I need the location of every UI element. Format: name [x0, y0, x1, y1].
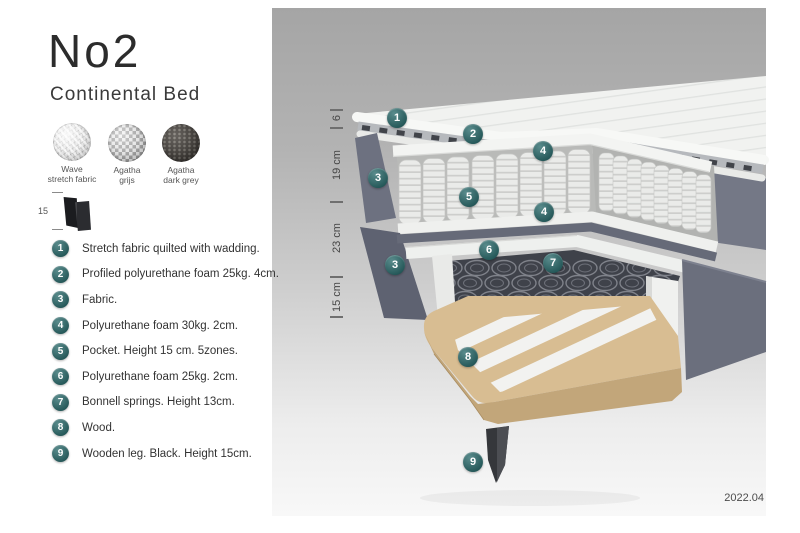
legend-item: 8 Wood. — [52, 415, 279, 441]
measure-tick — [330, 109, 343, 111]
measure-label-base: 23 cm — [331, 223, 343, 253]
legend-number-badge: 8 — [52, 419, 69, 436]
legend-item-text: Fabric. — [82, 294, 117, 306]
legend-number-badge: 2 — [52, 266, 69, 283]
diagram-background — [272, 8, 766, 516]
materials-legend: 1 Stretch fabric quilted with wadding. 2… — [52, 236, 279, 466]
measure-tick — [330, 201, 343, 203]
legend-item-text: Polyurethane foam 25kg. 2cm. — [82, 371, 238, 383]
legend-item-text: Polyurethane foam 30kg. 2cm. — [82, 320, 238, 332]
legend-item-text: Profiled polyurethane foam 25kg. 4cm. — [82, 268, 279, 280]
legend-number-badge: 3 — [52, 291, 69, 308]
legend-item-text: Stretch fabric quilted with wadding. — [82, 243, 260, 255]
legend-number-badge: 5 — [52, 343, 69, 360]
legend-item-text: Wooden leg. Black. Height 15cm. — [82, 448, 252, 460]
fabric-swatch-wave-icon — [53, 123, 91, 161]
legend-item: 5 Pocket. Height 15 cm. 5zones. — [52, 338, 279, 364]
callout-5-pocket-springs: 5 — [459, 187, 479, 207]
leg-figure-bottom-tick — [52, 229, 63, 230]
callout-9-wooden-leg: 9 — [463, 452, 483, 472]
measure-label-topper: 6 — [331, 115, 343, 121]
measure-label-mattress: 19 cm — [331, 150, 343, 180]
version-stamp: 2022.04 — [696, 492, 764, 504]
page: No2 Continental Bed Wavestretch fabric A… — [0, 0, 800, 533]
legend-item-text: Pocket. Height 15 cm. 5zones. — [82, 345, 238, 357]
callout-4-foam-top: 4 — [533, 141, 553, 161]
measure-tick — [330, 316, 343, 318]
swatch-label-agatha-dark-grey: Agathadark grey — [146, 166, 216, 185]
measure-label-leg: 15 cm — [331, 282, 343, 312]
callout-8-wood: 8 — [458, 347, 478, 367]
callout-7-bonnell-springs: 7 — [543, 253, 563, 273]
legend-item: 3 Fabric. — [52, 287, 279, 313]
legend-item: 1 Stretch fabric quilted with wadding. — [52, 236, 279, 262]
callout-3-fabric-lower: 3 — [385, 255, 405, 275]
legend-item: 4 Polyurethane foam 30kg. 2cm. — [52, 313, 279, 339]
leg-figure-height-label: 15 — [38, 206, 48, 216]
legend-item: 9 Wooden leg. Black. Height 15cm. — [52, 441, 279, 467]
callout-4-foam-bottom: 4 — [534, 202, 554, 222]
measure-tick — [330, 127, 343, 129]
legend-number-badge: 4 — [52, 317, 69, 334]
callout-3-fabric-upper: 3 — [368, 168, 388, 188]
product-subtitle: Continental Bed — [50, 84, 200, 106]
legend-item: 7 Bonnell springs. Height 13cm. — [52, 390, 279, 416]
legend-item: 6 Polyurethane foam 25kg. 2cm. — [52, 364, 279, 390]
callout-6-base-foam: 6 — [479, 240, 499, 260]
legend-item-text: Bonnell springs. Height 13cm. — [82, 396, 235, 408]
bed-leg-icon — [63, 197, 78, 228]
fabric-swatch-agatha-dark-grey-icon — [162, 124, 200, 162]
product-title: No2 — [48, 24, 141, 78]
fabric-swatch-agatha-grijs-icon — [108, 124, 146, 162]
legend-item-text: Wood. — [82, 422, 115, 434]
callout-1-stretch-fabric: 1 — [387, 108, 407, 128]
leg-figure-top-tick — [52, 192, 63, 193]
legend-item: 2 Profiled polyurethane foam 25kg. 4cm. — [52, 262, 279, 288]
callout-2-profiled-foam: 2 — [463, 124, 483, 144]
legend-number-badge: 1 — [52, 240, 69, 257]
measure-tick — [330, 276, 343, 278]
legend-number-badge: 7 — [52, 394, 69, 411]
legend-number-badge: 9 — [52, 445, 69, 462]
legend-number-badge: 6 — [52, 368, 69, 385]
